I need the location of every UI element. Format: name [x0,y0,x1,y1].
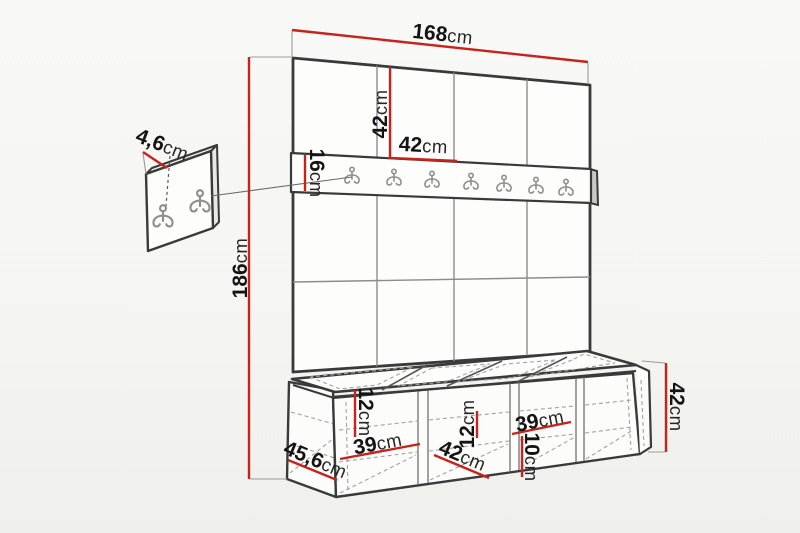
wall-panel-front [293,58,590,372]
dimension-label-bench-height: 42cm [665,382,688,431]
dimension-label-bench-left-inner-height: 12cm [354,387,377,436]
dimension-label-bench-right-inner-height: 10cm [520,432,543,481]
dimension-label-bench-mid-inner-height: 12cm [456,399,479,448]
furniture-dimension-diagram: 168cm 186cm 42cm 42cm 16cm 4,6cm [0,0,800,533]
dimension-label-panel-height: 42cm [369,89,392,138]
dimension-bench-left-inner-height: 12cm [354,387,377,437]
wall-panel-unit [291,58,598,372]
dimension-label-total-height: 186cm [229,238,252,299]
dimension-label-hook-panel-depth: 4,6cm [133,124,192,165]
dimension-total-height: 186cm [229,57,291,479]
dimension-bench-right-inner-height: 10cm [520,432,543,481]
dimension-label-panel-width: 42cm [398,133,448,159]
diagram-canvas: 168cm 186cm 42cm 42cm 16cm 4,6cm [0,0,800,533]
dimension-rail-height: 16cm [305,148,328,197]
dimension-label-rail-height: 16cm [305,148,328,197]
dimension-bench-mid-inner-height: 12cm [456,399,479,448]
